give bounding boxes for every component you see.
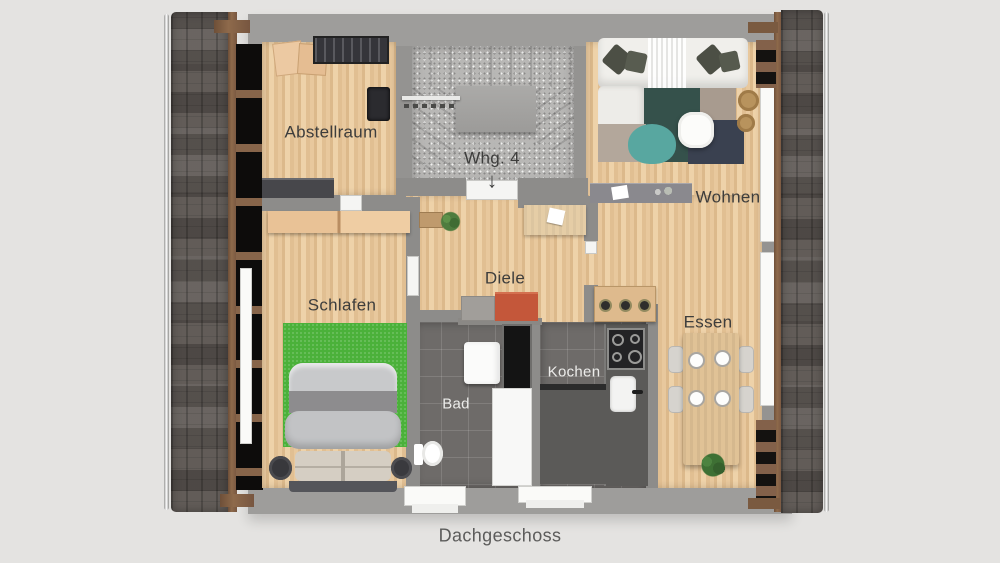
bed-blanket-band — [289, 391, 397, 413]
stair-steps-right — [534, 88, 574, 150]
wardrobe — [268, 211, 410, 233]
window-right-upper — [760, 80, 775, 242]
stair-steps-left — [412, 88, 456, 172]
window-right-lower — [760, 252, 775, 406]
planter-pot-3 — [640, 301, 649, 310]
wall-stair-bottom-right — [518, 178, 588, 196]
cooktop-burner-2 — [630, 334, 640, 344]
right-roof-shingles — [781, 10, 823, 513]
room-label-wohnen: Wohnen — [696, 189, 761, 206]
window-bottom-kochen-sill — [526, 500, 584, 508]
room-label-schlafen: Schlafen — [308, 297, 377, 314]
bed — [289, 363, 397, 492]
unit-entrance-arrow-icon: ↓ — [487, 171, 498, 192]
nightstand-right — [391, 457, 412, 479]
door-abstellraum — [340, 195, 362, 211]
bad-shaft — [502, 324, 532, 390]
sideboard-paper — [611, 185, 629, 200]
dining-chair-2 — [668, 386, 684, 413]
nightstand-left — [269, 456, 292, 480]
dining-chair-1 — [668, 346, 684, 373]
room-label-kochen: Kochen — [548, 365, 601, 380]
place-setting-3 — [688, 390, 705, 407]
window-bottom-bad-sill — [412, 504, 458, 513]
window-bottom-bad — [404, 486, 466, 506]
room-label-diele: Diele — [485, 270, 525, 287]
shower — [492, 388, 532, 486]
unit-label-whg4: Whg. 4 — [464, 150, 520, 167]
room-label-bad: Bad — [442, 397, 470, 412]
bed-duvet-roll — [285, 411, 401, 449]
room-label-essen: Essen — [684, 314, 733, 331]
desk-paper — [547, 208, 566, 226]
essen-plant — [698, 448, 728, 482]
cooktop-burner-4 — [628, 350, 642, 364]
right-gutter-line — [824, 12, 829, 512]
rug-teal-oval — [628, 124, 676, 164]
kitchen-counter-low — [540, 384, 606, 484]
floor-plan-canvas: Abstellraum Whg. 4 ↓ Wohnen Schlafen Die… — [0, 0, 1000, 563]
bicycle-trainer — [367, 87, 390, 121]
right-bottom-corner-timber — [748, 498, 780, 509]
place-setting-1 — [688, 352, 705, 369]
place-setting-4 — [714, 390, 731, 407]
coffee-table — [678, 112, 714, 148]
wall-wohnen-essen-stub-a — [584, 197, 598, 241]
bed-frame-foot — [289, 481, 397, 492]
stair-landing-block — [456, 86, 536, 132]
wall-abstellraum-schlafen-right — [362, 195, 406, 211]
kitchen-sink — [610, 376, 636, 412]
right-top-frame — [756, 40, 776, 88]
cooktop-burner-1 — [612, 334, 624, 346]
bad-boiler — [464, 342, 500, 384]
basket-small — [737, 114, 755, 132]
stair-balusters — [404, 104, 458, 108]
sofa-cushion-2 — [624, 50, 648, 74]
sideboard-decor — [650, 186, 676, 198]
right-top-corner-timber — [748, 22, 778, 33]
left-gutter-line — [164, 14, 169, 510]
cooktop — [607, 328, 645, 370]
diele-plant — [438, 208, 463, 235]
toilet-bowl — [422, 441, 443, 466]
planter-pot-1 — [601, 301, 610, 310]
abstellraum-cabinet — [262, 178, 334, 198]
sofa-cushion-4 — [718, 50, 741, 73]
dining-chair-3 — [738, 346, 754, 373]
sink-faucet — [632, 390, 643, 394]
hall-bench-cushion-orange — [495, 292, 538, 321]
hall-bench-cushion-gray — [461, 296, 495, 321]
bed-pillows — [295, 451, 391, 481]
window-left-schlafen — [240, 268, 252, 444]
left-roof-shingles — [171, 12, 228, 512]
right-bottom-frame — [756, 420, 776, 500]
room-label-abstellraum: Abstellraum — [284, 124, 377, 141]
cooktop-burner-3 — [612, 352, 622, 362]
floor-caption: Dachgeschoss — [439, 526, 562, 547]
stair-handrail — [402, 96, 460, 100]
stair-steps-top — [412, 46, 574, 88]
wall-stair-bottom-left — [396, 178, 466, 196]
basket-large — [738, 90, 759, 111]
door-wohnen — [585, 241, 597, 254]
door-schlafen — [407, 256, 419, 296]
bed-duvet-top — [289, 363, 397, 393]
dining-chair-4 — [738, 386, 754, 413]
planter-pot-2 — [621, 301, 630, 310]
place-setting-2 — [714, 350, 731, 367]
left-top-corner-timber — [214, 20, 250, 33]
storage-shelf — [313, 36, 389, 64]
wohnen-sideboard — [590, 183, 692, 203]
sofa-throw-blanket — [648, 38, 686, 94]
left-bottom-corner-timber — [220, 494, 254, 507]
